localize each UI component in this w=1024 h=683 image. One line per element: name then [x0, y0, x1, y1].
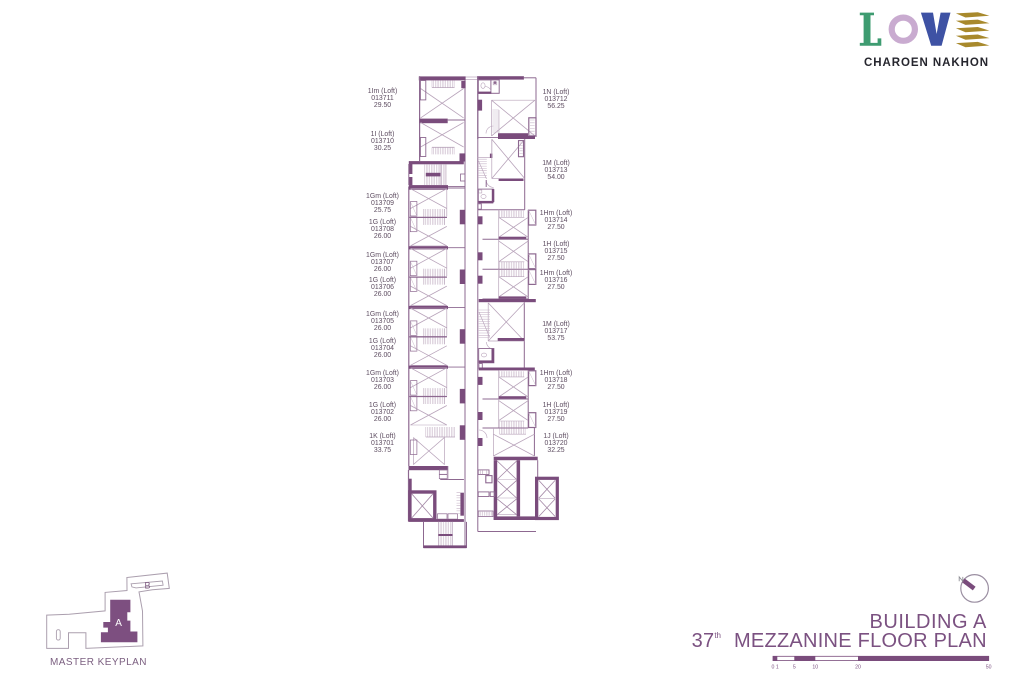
svg-text:B: B — [144, 581, 150, 591]
svg-text:5: 5 — [793, 665, 796, 671]
svg-text:10: 10 — [812, 665, 818, 671]
svg-text:1: 1 — [776, 665, 779, 671]
svg-text:20: 20 — [855, 665, 861, 671]
svg-text:50: 50 — [986, 665, 992, 671]
svg-text:A: A — [115, 618, 122, 629]
svg-text:0: 0 — [772, 665, 775, 671]
